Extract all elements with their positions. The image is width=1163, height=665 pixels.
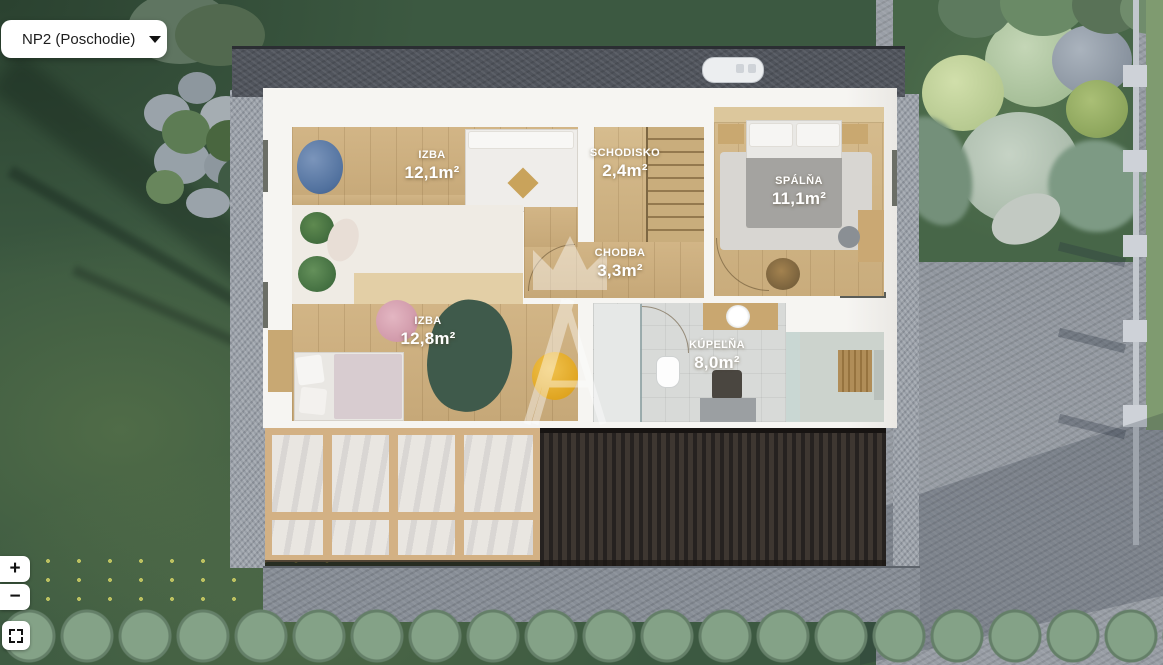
fullscreen-button[interactable] [2, 621, 30, 650]
fence-post [1123, 320, 1147, 342]
bed-pillow [295, 354, 325, 385]
room-area: 2,4m² [590, 160, 660, 182]
nightstand [718, 124, 744, 144]
room-name: CHODBA [595, 246, 646, 260]
room-label-spalna: SPÁLŇA 11,1m² [772, 174, 826, 210]
pergola-beam [389, 428, 398, 562]
bush [1066, 80, 1128, 138]
plan-viewport[interactable]: A IZBA 12,1m² SCHODISKO 2,4m² SPÁLŇA 11,… [0, 0, 1163, 665]
room-name: IZBA [404, 148, 459, 162]
bench [874, 350, 884, 400]
room-name: KÚPEĽŇA [689, 338, 745, 352]
chair [838, 226, 860, 248]
window-slot [892, 150, 897, 206]
room-label-schodisko: SCHODISKO 2,4m² [590, 146, 660, 182]
room-name: SCHODISKO [590, 146, 660, 160]
window-slot [263, 140, 268, 192]
bush [146, 170, 184, 204]
pergola-beam [455, 428, 464, 562]
room-area: 12,1m² [404, 162, 459, 184]
room-label-kupelna: KÚPEĽŇA 8,0m² [689, 338, 745, 374]
room-area: 8,0m² [689, 352, 745, 374]
roof-vent-slot [748, 64, 756, 73]
room-area: 12,8m² [400, 328, 455, 350]
rock [186, 188, 230, 218]
bed-pillow [468, 131, 574, 149]
bed-pillow [299, 387, 328, 416]
staircase-divider [646, 127, 648, 244]
bed-pillow [796, 123, 840, 147]
wood-mat [838, 350, 872, 392]
laundry-basket [712, 370, 742, 400]
nightstand [842, 124, 868, 144]
plant [766, 258, 800, 290]
floor-selector-value: NP2 (Poschodie) [22, 31, 135, 48]
caret-down-icon [149, 36, 161, 43]
fullscreen-icon [9, 629, 23, 643]
room-area: 11,1m² [772, 188, 826, 210]
bush [162, 110, 210, 154]
room-area: 3,3m² [595, 260, 646, 282]
wardrobe [268, 330, 292, 392]
toilet [656, 356, 680, 388]
glass-door [786, 332, 800, 422]
room-label-izba-1: IZBA 12,1m² [404, 148, 459, 184]
roof-vent-slot [736, 64, 744, 73]
room-label-chodba: CHODBA 3,3m² [595, 246, 646, 282]
fence-post [1123, 65, 1147, 87]
floor-selector-dropdown[interactable]: NP2 (Poschodie) [1, 20, 167, 58]
staircase-steps [648, 127, 704, 244]
desk [858, 210, 884, 262]
fence-strip [1146, 0, 1163, 430]
sink [726, 305, 750, 328]
desk-top-wood [354, 273, 523, 304]
plant [298, 256, 336, 292]
fence-post [1123, 150, 1147, 172]
bed-blanket [334, 354, 402, 419]
bed-pillow [749, 123, 793, 147]
zoom-out-button[interactable]: − [0, 584, 30, 610]
pergola-frame [265, 428, 540, 562]
room-label-izba-2: IZBA 12,8m² [400, 314, 455, 350]
room-name: SPÁLŇA [772, 174, 826, 188]
room-name: IZBA [400, 314, 455, 328]
zoom-in-button[interactable]: + [0, 556, 30, 582]
slat-roof [540, 428, 886, 566]
window-slot [263, 282, 268, 328]
gravel-border-left [230, 90, 265, 568]
bath-cabinet [700, 398, 756, 422]
beanbag [297, 140, 343, 194]
pergola-beam [323, 428, 332, 562]
fence-post [1123, 235, 1147, 257]
hedge-row [0, 608, 1163, 665]
pergola-beam [265, 512, 540, 520]
